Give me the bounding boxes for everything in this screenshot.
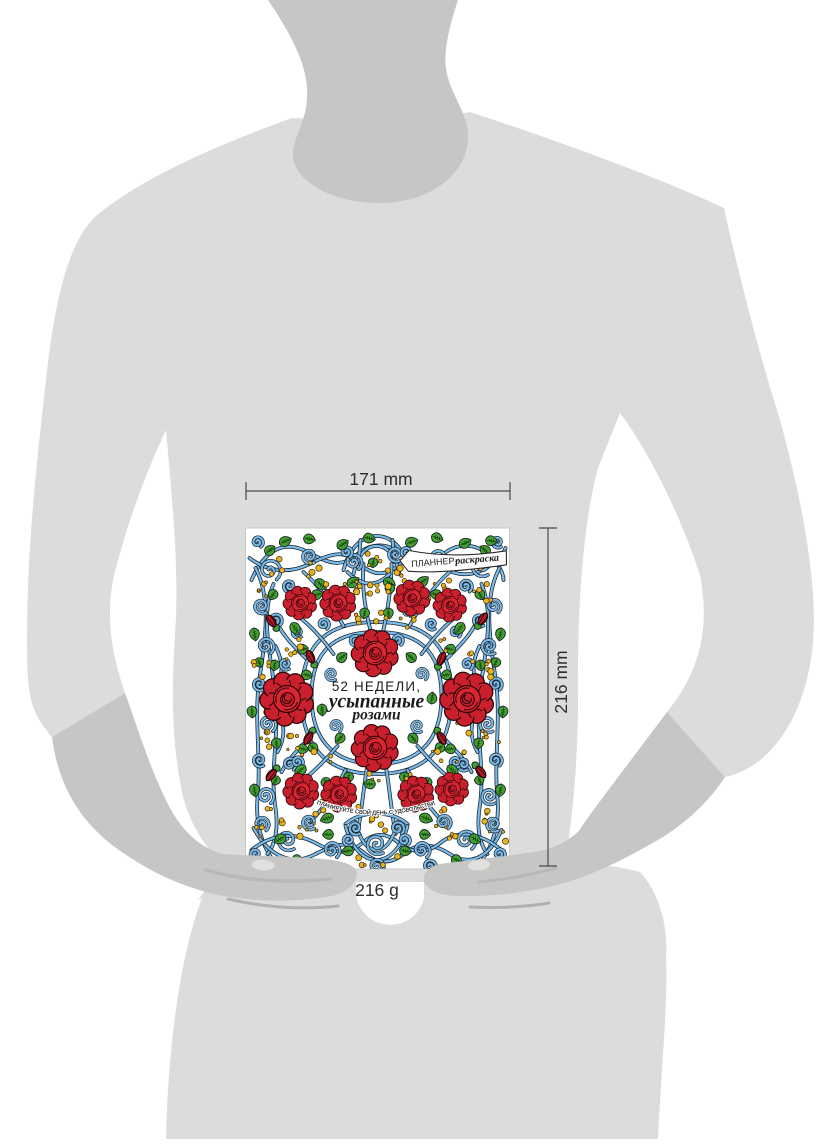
svg-text:171 mm: 171 mm <box>349 469 412 489</box>
svg-text:розами: розами <box>350 707 401 724</box>
svg-text:216 mm: 216 mm <box>551 650 571 713</box>
svg-text:216 g: 216 g <box>355 880 399 900</box>
